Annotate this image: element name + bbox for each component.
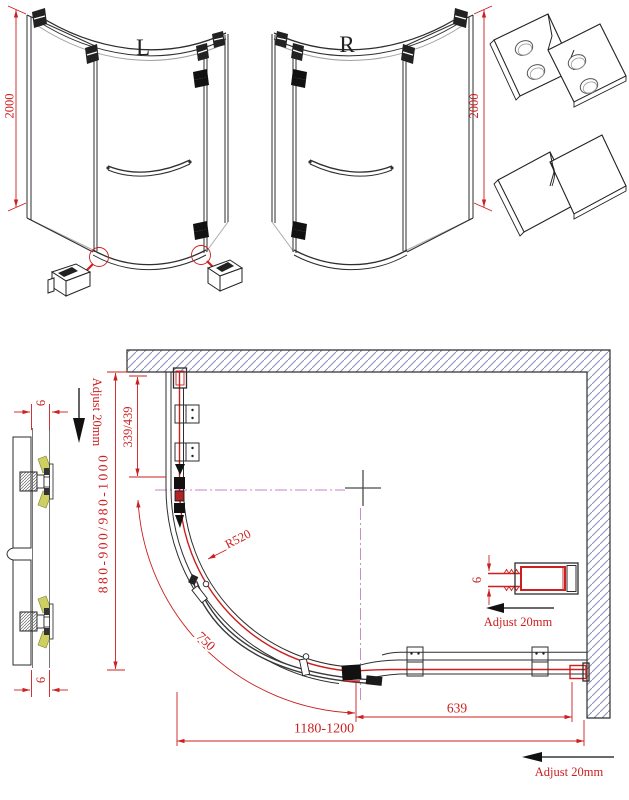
dim-door-radius: R520 [223, 527, 253, 552]
adjust-arrow-left-bottom-icon [522, 752, 614, 762]
radius-center-cross [345, 470, 381, 506]
glass-thickness-bottom-label: 6 [34, 677, 48, 683]
elevation-view-right: R 2000 [272, 6, 492, 270]
bracket-callouts [48, 246, 242, 297]
adjust-label-mid-right: Adjust 20mm [484, 615, 553, 629]
dim-handle-to-wall: 639 [447, 701, 468, 716]
dim-total-width-range: 1180-1200 [294, 722, 354, 737]
door-glass-arc [180, 371, 354, 671]
door-handle-plan [342, 664, 362, 681]
height-dim-left: 2000 [3, 94, 17, 119]
wall-profile-right-detail [486, 563, 578, 613]
hinge-detail-with-holes [490, 14, 626, 107]
hinge-detail-plain [494, 135, 626, 236]
height-dim-right: 2000 [467, 94, 481, 119]
plan-view: Adjust 20mm 339/439 880-900/980-1000 R52… [7, 350, 614, 779]
floor-guide-bracket-left [48, 264, 90, 296]
glass-thickness-right-label: 6 [470, 577, 484, 583]
wall-profile-left-detail [7, 428, 53, 668]
dim-door-arc-width: 750 [194, 629, 219, 654]
adjust-label-bottom-right: Adjust 20mm [535, 765, 604, 779]
shower-enclosure-drawing: L 2000 R 2000 [0, 0, 629, 800]
dim-wall-to-door-axis: 339/439 [121, 407, 135, 448]
glass-thickness-top-label: 6 [34, 400, 48, 406]
adjust-arrow-down-icon [73, 388, 85, 443]
view-label-left: L [136, 35, 150, 60]
technical-drawing-page: L 2000 R 2000 [0, 0, 629, 800]
adjust-arrow-left-icon [486, 603, 554, 613]
elevation-view-left: L 2000 [3, 6, 243, 296]
view-label-right: R [339, 32, 355, 57]
dim-depth-range: 880-900/980-1000 [96, 453, 111, 594]
floor-guide-bracket-right [208, 260, 242, 291]
adjust-label-top-left: Adjust 20mm [90, 378, 104, 447]
towel-bar-end-cap [366, 675, 383, 686]
